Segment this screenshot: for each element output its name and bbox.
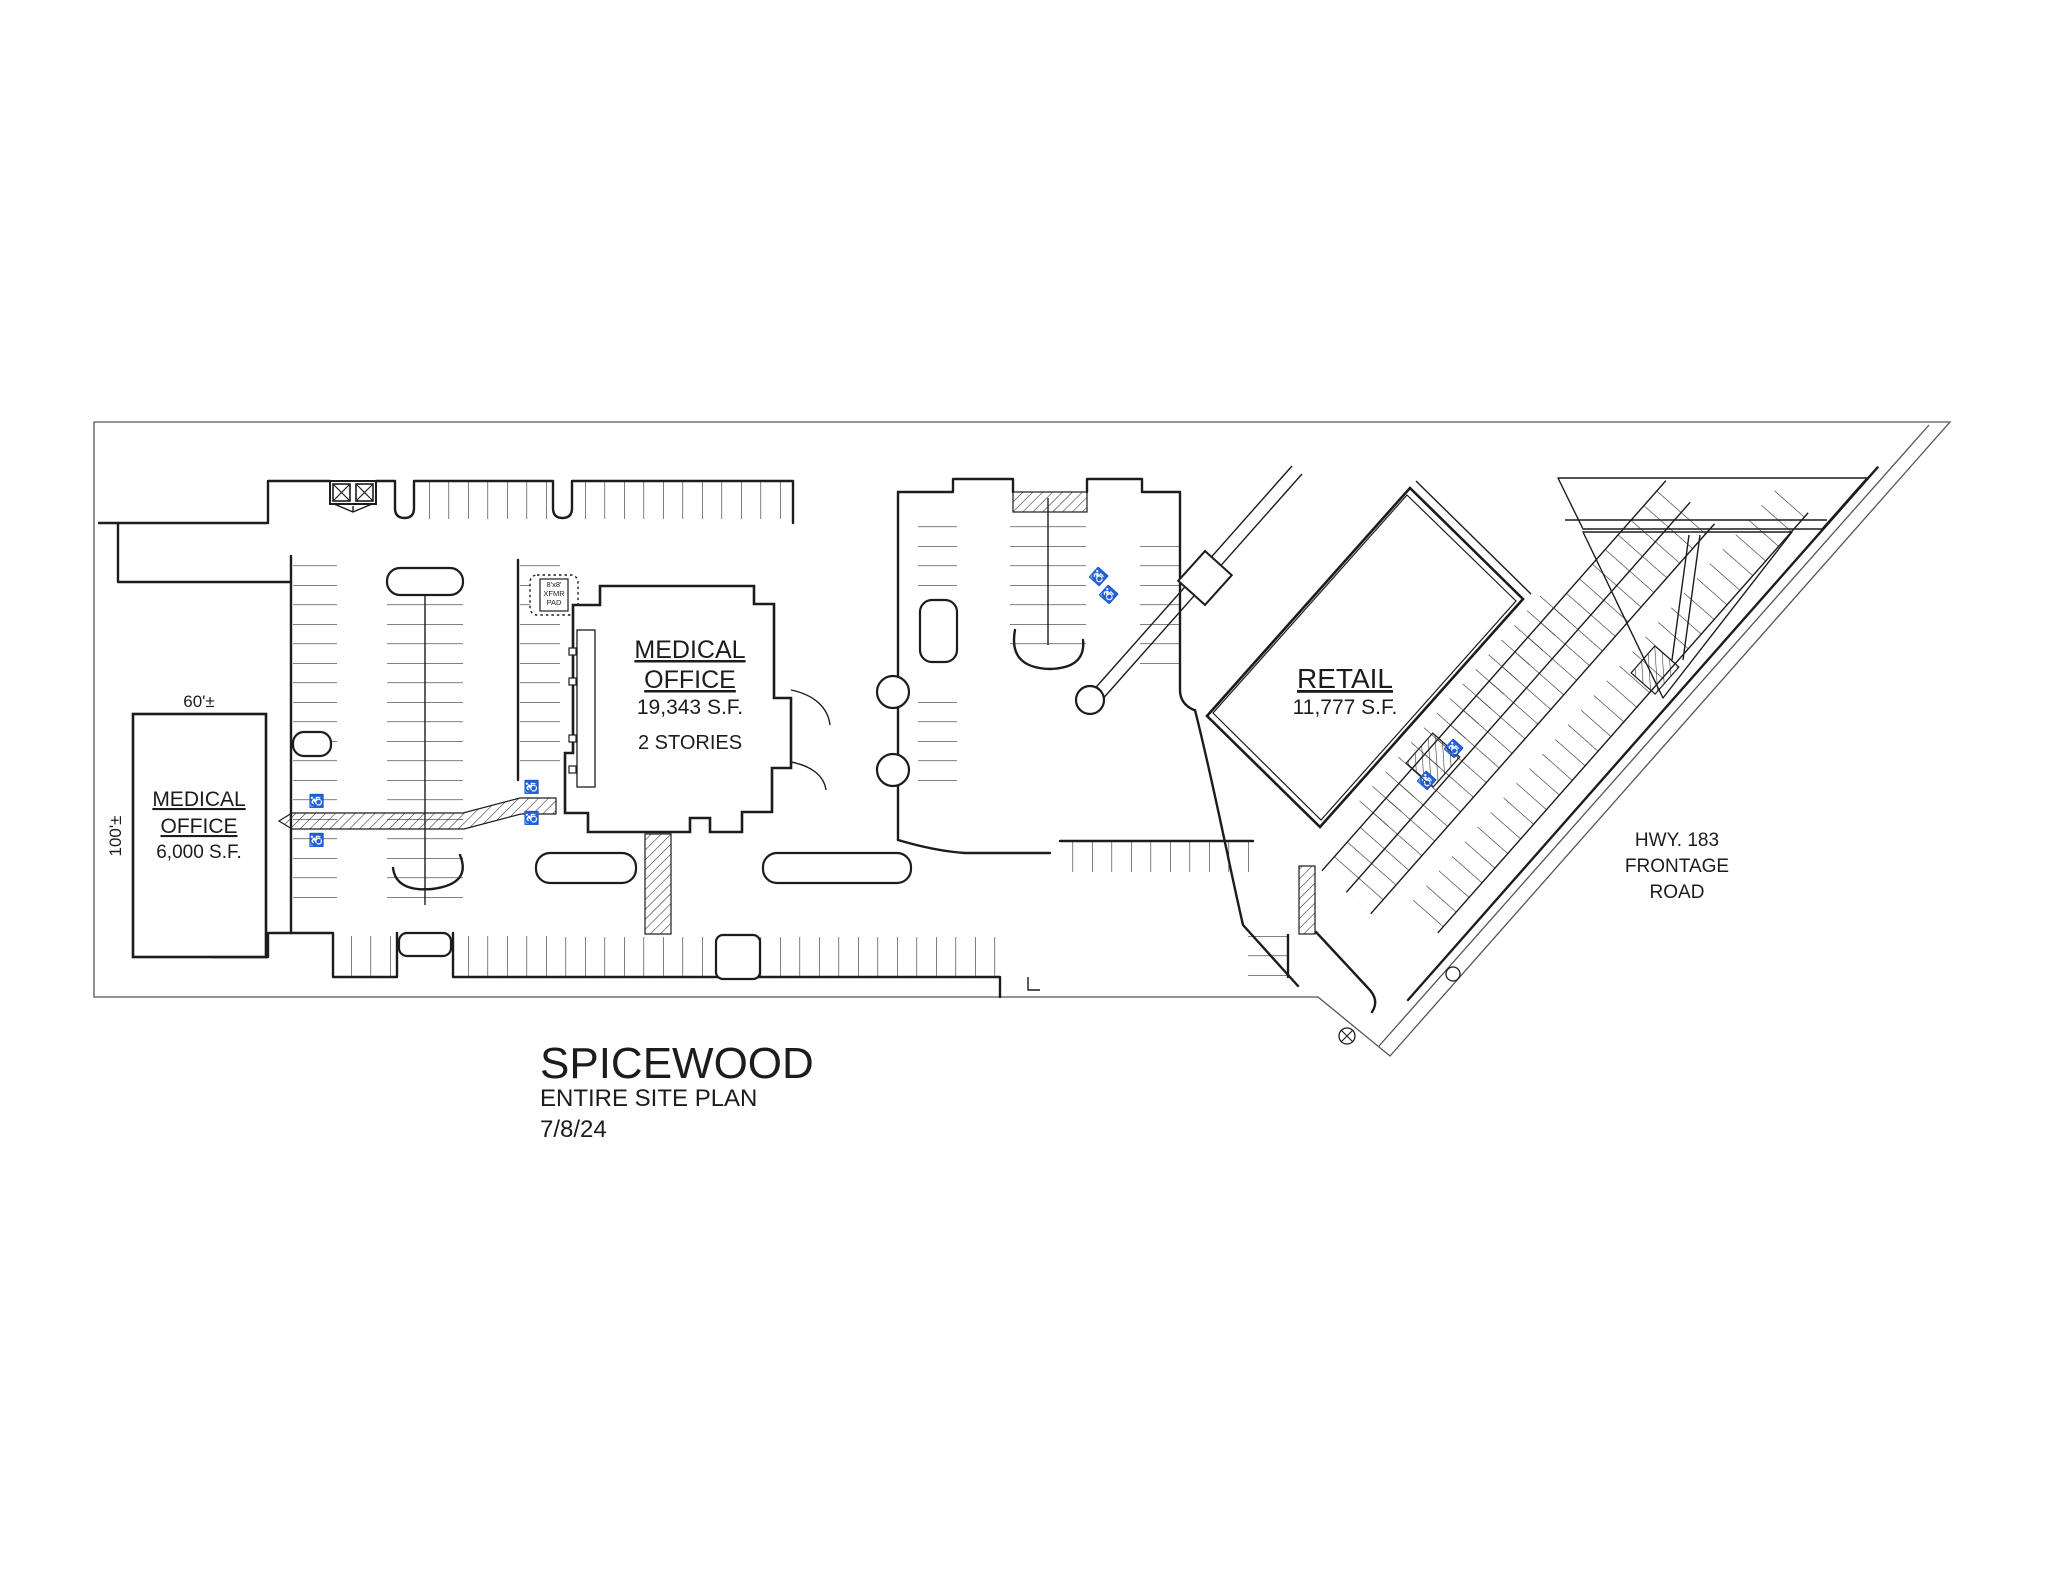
building-area-label: 19,343 S.F. [637, 696, 743, 719]
transformer-pad: 8'x8' XFMR PAD [530, 575, 578, 615]
dumpster-enclosure [330, 481, 376, 512]
curb-island [399, 933, 451, 956]
south-parking-row [213, 853, 1040, 997]
building-medical-office-central: MEDICAL OFFICE 19,343 S.F. 2 STORIES [565, 586, 830, 832]
building-area-label: 11,777 S.F. [1293, 696, 1398, 719]
middle-parking-field [877, 479, 1194, 853]
sheet-date: 7/8/24 [540, 1116, 607, 1143]
building-label: MEDICAL [634, 636, 745, 664]
island-bulb [877, 676, 909, 708]
accessible-icon: ♿ [309, 832, 324, 848]
curb-island [716, 935, 760, 979]
crosswalk-central [645, 834, 671, 934]
accessible-icon: ♿ [1088, 566, 1110, 588]
parking-island [387, 568, 463, 595]
accessible-icon: ♿ [524, 810, 539, 826]
dimension-depth: 100'± [106, 816, 125, 857]
building-medical-office-west: MEDICAL OFFICE 6,000 S.F. 60'± 100'± [106, 692, 266, 957]
building-label: MEDICAL [152, 788, 245, 811]
sheet-subtitle: ENTIRE SITE PLAN [540, 1085, 757, 1112]
parking-island [920, 600, 957, 662]
building-label: OFFICE [161, 815, 238, 838]
drive-connector [791, 690, 830, 790]
road-label: HWY. 183 FRONTAGE ROAD [1625, 830, 1729, 903]
title-block: SPICEWOOD ENTIRE SITE PLAN 7/8/24 [540, 1039, 814, 1143]
road-label-line1: HWY. 183 [1635, 830, 1719, 851]
dimension-width: 60'± [183, 692, 215, 711]
accessible-icon: ♿ [524, 779, 539, 795]
building-stories-label: 2 STORIES [638, 732, 742, 754]
building-label: OFFICE [644, 666, 736, 694]
island-bulb [1076, 686, 1104, 714]
parking-island [763, 853, 911, 883]
road-label-line3: ROAD [1650, 882, 1705, 903]
accessible-icon: ♿ [309, 793, 324, 809]
xfmr-pad-label: 8'x8' [547, 580, 563, 589]
building-area-label: 6,000 S.F. [156, 842, 242, 863]
parking-island [536, 853, 636, 883]
island-bulb [877, 754, 909, 786]
light-pole-icon [1339, 1028, 1355, 1044]
building-label: RETAIL [1297, 663, 1393, 694]
curb-island [293, 732, 331, 756]
utility-pole-icon [1446, 967, 1460, 981]
sheet-title: SPICEWOOD [540, 1039, 814, 1088]
pad-structure [1178, 551, 1232, 605]
accessible-icon: ♿ [1098, 584, 1120, 606]
crosswalk-middle-lot [1013, 492, 1087, 512]
xfmr-pad-label: PAD [547, 598, 562, 607]
site-plan-sheet: ♿ ♿ ♿ ♿ ♿ ♿ ♿ ♿ 8'x8' XFMR PAD MEDICAL O… [0, 0, 2048, 1583]
xfmr-pad-label: XFMR [543, 589, 565, 598]
site-plan-drawing: ♿ ♿ ♿ ♿ ♿ ♿ ♿ ♿ 8'x8' XFMR PAD MEDICAL O… [0, 0, 2048, 1583]
crosswalk-driveway [1299, 866, 1315, 934]
road-label-line2: FRONTAGE [1625, 856, 1729, 877]
